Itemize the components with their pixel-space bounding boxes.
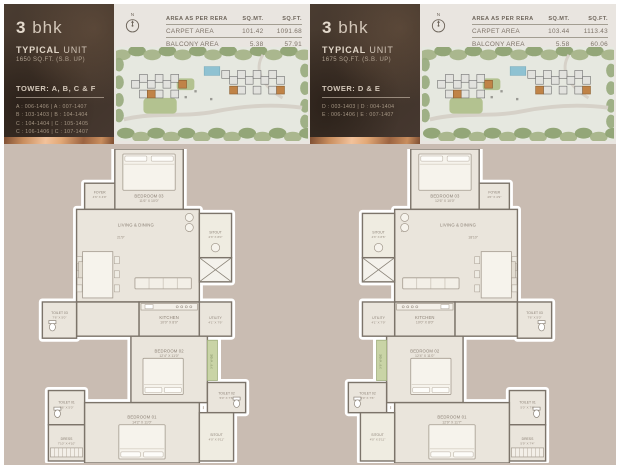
room-toilet01: TOILET 015'0" X 7'6" (509, 391, 545, 425)
chair-icon (77, 285, 82, 292)
room-label: TOILET 02 (359, 392, 376, 396)
row-label: CARPET AREA (472, 28, 538, 35)
room-label: UTILITY (209, 316, 222, 320)
col-sqmt-label: SQ.MT. (232, 16, 264, 22)
unit-type-title: 3 bhk (16, 18, 104, 38)
chair-icon (114, 285, 119, 292)
unit-numbers-line: C : 104-1404 | C : 105-1405 (16, 120, 104, 128)
room-bedroom02: BEDROOM 0212'4" X 11'0" (131, 336, 207, 402)
room-label: UTILITY (372, 316, 385, 320)
room-hall (77, 302, 139, 336)
room-kitchen: KITCHEN10'0" X 8'0" (139, 302, 199, 336)
room-label: KITCHEN (415, 315, 435, 320)
room-living: LIVING & DINING18'10"17'6" (395, 209, 518, 302)
dining-table-icon (83, 252, 113, 298)
room-bedroom01: BEDROOM 0114'2" X 11'0" (85, 403, 200, 463)
room-dim-width: 21'9" (117, 236, 126, 240)
compass-n-label: N (131, 12, 135, 18)
card-header: 3 bhk TYPICAL UNIT 1650 SQ.FT. (S.B. UP)… (4, 4, 310, 144)
unit-word: UNIT (369, 45, 393, 55)
highlighted-tower (583, 86, 591, 94)
room-planter: 3'6" WIDE (377, 340, 387, 380)
patio-table-icon (374, 243, 382, 251)
room-utility: UTILITY4'1" X 7'9" (199, 302, 231, 336)
highlighted-tower (277, 86, 285, 94)
room-bedroom02: BEDROOM 0212'4" X 11'0" (387, 336, 463, 402)
col-area-label: AREA AS PER RERA (472, 16, 538, 22)
row-label: CARPET AREA (166, 28, 232, 35)
lawn-area (143, 98, 176, 114)
room-foyer: FOYER4'6" X 4'9" (479, 183, 509, 209)
pouf-icon (401, 223, 409, 231)
room-dims-label: 4'6" X 4'9" (93, 195, 107, 199)
pillow-icon (447, 156, 469, 161)
lawn-area (449, 98, 482, 114)
room-toilet03: TOILET 037'6" X 5'0" (42, 302, 76, 338)
unit-numbers-line: C : 106-1406 | C : 107-1407 (16, 128, 104, 136)
brochure-page: 3 bhk TYPICAL UNIT 1650 SQ.FT. (S.B. UP)… (4, 4, 616, 465)
row-sqft: 1091.68 (263, 28, 302, 35)
unit-info-panel: 3 bhk TYPICAL UNIT 1650 SQ.FT. (S.B. UP)… (4, 4, 114, 137)
dining-table-icon (481, 252, 511, 298)
room-dims-label: 12'6" X 10'0" (435, 199, 456, 203)
room-bedroom03: BEDROOM 0311'6" X 10'0" (115, 149, 183, 209)
planter-width-label: 3'6" WIDE (209, 354, 213, 369)
room-label: TOILET 02 (218, 392, 235, 396)
pillow-icon (421, 156, 443, 161)
pouf-icon (185, 223, 193, 231)
room-dims-label: 4'3" X 8'0" (208, 235, 222, 239)
room-bedroom03: BEDROOM 0312'6" X 10'0" (411, 149, 479, 209)
divider-line (322, 97, 410, 98)
unit-numbers-line: D : 003-1403 | D : 004-1404 (322, 103, 410, 111)
pillow-icon (164, 388, 181, 393)
col-sqft-label: SQ.FT. (569, 16, 608, 22)
north-compass-icon: N (430, 10, 447, 35)
pouf-icon (185, 213, 193, 221)
typical-unit-label: TYPICAL UNIT (322, 45, 410, 55)
col-sqft-label: SQ.FT. (263, 16, 302, 22)
header-right-panel: N AREA AS PER RERA SQ.MT. SQ.FT. CARPET … (420, 4, 616, 144)
room-label: TOILET 03 (51, 311, 68, 315)
row-sqmt: 103.44 (538, 28, 570, 35)
unit-numbers-line: E : 006-1406 | E : 007-1407 (322, 111, 410, 119)
tower-label: TOWER: A, B, C & F (16, 84, 104, 93)
room-duct1 (362, 258, 394, 282)
sink-icon (145, 305, 153, 309)
divider-line (16, 97, 104, 98)
row-sqft: 1113.43 (569, 28, 608, 35)
room-dims-label: 4'1" X 7'9" (208, 321, 222, 325)
room-living: LIVING & DINING21'9"17'5" (77, 209, 200, 302)
room-dress: DRESS7'10" X 4'10" (48, 425, 84, 461)
room-dims-label: 7'6" X 5'0" (527, 316, 541, 320)
room-label: BEDROOM 02 (155, 348, 185, 353)
room-label: KITCHEN (159, 315, 179, 320)
chair-icon (475, 285, 480, 292)
floor-plan-area: BEDROOM 0312'6" X 10'0"FOYER4'6" X 4'9"L… (310, 144, 616, 465)
room-dims-label: 5'0" X 7'6" (219, 396, 233, 400)
room-label: FOYER (94, 190, 106, 194)
highlighted-tower (147, 90, 155, 98)
room-sitout_upper: SITOUT4'3" X 8'0" (199, 213, 231, 257)
room-label: LIVING & DINING (118, 222, 154, 227)
highlighted-tower (230, 86, 238, 94)
pillow-icon (145, 388, 162, 393)
saleable-area-note: 1675 SQ.FT. (S.B. UP) (322, 57, 410, 63)
room-dims-label: 4'0" X 5'11" (370, 437, 386, 441)
typical-unit-label: TYPICAL UNIT (16, 45, 104, 55)
area-table: AREA AS PER RERA SQ.MT. SQ.FT. CARPET AR… (472, 13, 608, 50)
carpet-area-row: CARPET AREA 103.44 1113.43 (472, 25, 608, 38)
pillow-icon (431, 452, 450, 457)
highlighted-tower (485, 80, 493, 88)
room-toilet02: TOILET 025'0" X 7'6" (348, 382, 386, 412)
compass-n-label: N (437, 12, 441, 18)
room-dims-label: 7'6" X 5'0" (59, 405, 73, 409)
pillow-icon (125, 156, 147, 161)
floor-plan-drawing: BEDROOM 0312'6" X 10'0"FOYER4'6" X 4'9"L… (344, 149, 556, 463)
room-label: SITOUT (372, 231, 384, 235)
area-table-header-row: AREA AS PER RERA SQ.MT. SQ.FT. (472, 13, 608, 25)
room-dims-label: 10'0" X 8'0" (160, 321, 179, 325)
chair-icon (475, 271, 480, 278)
card-header: 3 bhk TYPICAL UNIT 1675 SQ.FT. (S.B. UP)… (310, 4, 616, 144)
room-label: BEDROOM 01 (127, 415, 157, 420)
room-label: BEDROOM 03 (430, 193, 460, 198)
room-toilet01: TOILET 017'6" X 5'0" (48, 391, 84, 425)
pillow-icon (432, 388, 449, 393)
room-label: TOILET 01 (58, 401, 75, 405)
room-toilet03: TOILET 037'6" X 5'0" (517, 302, 551, 338)
tv-unit-icon (511, 262, 515, 278)
room-dim-width: 18'10" (468, 236, 478, 240)
room-hall (455, 302, 517, 336)
unit-type-title: 3 bhk (322, 18, 410, 38)
room-dims-label: 12'9" X 11'7" (442, 420, 462, 424)
site-plan-illustration (422, 47, 614, 141)
room-label: DRESS (522, 437, 534, 441)
copper-accent-strip (310, 137, 420, 144)
room-dims-label: 12'4" X 11'0" (159, 354, 179, 358)
room-label: TOILET 03 (526, 311, 543, 315)
pouf-icon (401, 213, 409, 221)
col-sqmt-label: SQ.MT. (538, 16, 570, 22)
unit-card-abcf: 3 bhk TYPICAL UNIT 1650 SQ.FT. (S.B. UP)… (4, 4, 310, 465)
room-dims-label: 4'6" X 4'9" (487, 195, 501, 199)
planter-width-label: 3'6" WIDE (379, 354, 383, 369)
room-sitout_lower: SITOUT4'0" X 5'11" (360, 413, 394, 461)
site-plan-illustration (116, 47, 308, 141)
room-dims-label: 5'9" X 7'4" (520, 441, 534, 445)
swimming-pool (204, 67, 220, 76)
area-table-header-row: AREA AS PER RERA SQ.MT. SQ.FT. (166, 13, 302, 25)
floor-plan-drawing: BEDROOM 0311'6" X 10'0"FOYER4'6" X 4'9"L… (38, 149, 250, 463)
sink-icon (441, 305, 449, 309)
room-label: FOYER (488, 190, 500, 194)
room-label: SITOUT (209, 231, 221, 235)
room-dims-label: 11'6" X 10'0" (139, 199, 159, 203)
unit-numbers-list: D : 003-1403 | D : 004-1404E : 006-1406 … (322, 103, 410, 120)
highlighted-tower (536, 86, 544, 94)
unit-word: UNIT (63, 45, 87, 55)
chair-icon (114, 271, 119, 278)
room-foyer: FOYER4'6" X 4'9" (85, 183, 115, 209)
tower-label: TOWER: D & E (322, 84, 410, 93)
col-area-label: AREA AS PER RERA (166, 16, 232, 22)
room-dims-label: 7'6" X 5'0" (52, 316, 66, 320)
unit-numbers-line: A : 006-1406 | A : 007-1407 (16, 103, 104, 111)
room-toilet02: TOILET 025'0" X 7'6" (207, 382, 245, 412)
room-dims-label: 10'0" X 8'0" (416, 321, 435, 325)
bhk-suffix: bhk (32, 18, 62, 37)
room-label: BEDROOM 02 (410, 348, 440, 353)
room-dims-label: 4'1" X 7'9" (371, 321, 385, 325)
room-sitout_upper: SITOUT4'3" X 8'6" (362, 213, 394, 257)
header-right-panel: N AREA AS PER RERA SQ.MT. SQ.FT. CARPET … (114, 4, 310, 144)
room-dims-label: 5'0" X 7'6" (360, 396, 374, 400)
room-label: LIVING & DINING (440, 222, 476, 227)
room-dims-label: 4'3" X 8'6" (371, 235, 385, 239)
pillow-icon (144, 452, 163, 457)
highlighted-tower (453, 90, 461, 98)
row-sqmt: 101.42 (232, 28, 264, 35)
highlighted-tower (179, 80, 187, 88)
pillow-icon (454, 452, 473, 457)
room-label: DRESS (61, 437, 73, 441)
pillow-icon (413, 388, 430, 393)
unit-card-de: 3 bhk TYPICAL UNIT 1675 SQ.FT. (S.B. UP)… (310, 4, 616, 465)
room-label: SITOUT (371, 433, 383, 437)
chair-icon (512, 285, 517, 292)
room-label: BEDROOM 03 (134, 193, 164, 198)
bhk-count: 3 (322, 18, 332, 37)
room-dims-label: 4'0" X 9'11" (209, 437, 225, 441)
unit-numbers-line: B : 103-1403 | B : 104-1404 (16, 111, 104, 119)
room-duct1 (199, 258, 231, 282)
chair-icon (475, 257, 480, 264)
tv-unit-icon (79, 262, 83, 278)
room-label: TOILET 01 (519, 401, 536, 405)
floor-plan-area: BEDROOM 0311'6" X 10'0"FOYER4'6" X 4'9"L… (4, 144, 310, 465)
room-bedroom01: BEDROOM 0112'9" X 11'7" (395, 403, 510, 463)
unit-info-panel: 3 bhk TYPICAL UNIT 1675 SQ.FT. (S.B. UP)… (310, 4, 420, 137)
bhk-suffix: bhk (338, 18, 368, 37)
room-dims-label: 7'10" X 4'10" (58, 441, 76, 445)
room-label: BEDROOM 01 (437, 415, 467, 420)
room-planter: 3'6" WIDE (207, 340, 217, 380)
north-compass-icon: N (124, 10, 141, 35)
saleable-area-note: 1650 SQ.FT. (S.B. UP) (16, 57, 104, 63)
area-table: AREA AS PER RERA SQ.MT. SQ.FT. CARPET AR… (166, 13, 302, 50)
room-utility: UTILITY4'1" X 7'9" (362, 302, 394, 336)
room-dims-label: 14'2" X 11'0" (132, 420, 152, 424)
copper-accent-strip (4, 137, 114, 144)
room-label: SITOUT (210, 433, 222, 437)
typical-word: TYPICAL (16, 45, 60, 55)
room-dress: DRESS5'9" X 7'4" (509, 425, 545, 461)
swimming-pool (510, 67, 526, 76)
bhk-count: 3 (16, 18, 26, 37)
pillow-icon (151, 156, 173, 161)
room-kitchen: KITCHEN10'0" X 8'0" (395, 302, 455, 336)
patio-table-icon (211, 243, 219, 251)
room-sitout_lower: SITOUT4'0" X 9'11" (199, 413, 233, 461)
room-dims-label: 12'4" X 11'0" (415, 354, 435, 358)
room-dims-label: 5'0" X 7'6" (520, 405, 534, 409)
typical-word: TYPICAL (322, 45, 366, 55)
carpet-area-row: CARPET AREA 101.42 1091.68 (166, 25, 302, 38)
chair-icon (114, 257, 119, 264)
pillow-icon (121, 452, 140, 457)
